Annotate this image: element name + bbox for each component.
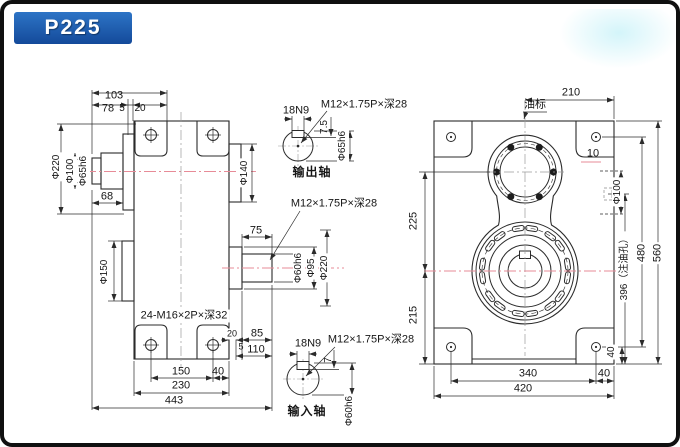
- dim-phi95: Φ95: [306, 256, 318, 279]
- dim-phi60h6-input: Φ60h6: [344, 394, 356, 428]
- dim-40-feet: 40: [212, 367, 224, 378]
- dim-phi100-front: Φ100: [612, 178, 624, 207]
- caption-input-shaft: 输入轴: [287, 405, 326, 417]
- dim-210: 210: [560, 87, 582, 100]
- dim-225: 225: [408, 210, 421, 232]
- dim-5-top: 5: [119, 104, 125, 114]
- dim-phi100-left: Φ100: [65, 157, 77, 186]
- dim-phi65h6-output: Φ65h6: [337, 129, 349, 163]
- oil-gauge-label: 油标: [524, 100, 546, 111]
- dim-40-bottom: 40: [598, 369, 610, 380]
- dim-480: 480: [636, 242, 649, 264]
- front-view-centerlines: [424, 100, 620, 356]
- dim-phi65h6-left: Φ65h6: [78, 154, 90, 188]
- dim-103: 103: [105, 91, 123, 102]
- dim-20-top: 20: [134, 104, 145, 114]
- dim-110: 110: [247, 345, 265, 356]
- thread-note-output: M12×1.75P×深28: [321, 100, 407, 111]
- thread-note-mid: M12×1.75P×深28: [289, 198, 379, 211]
- dim-phi140: Φ140: [239, 159, 251, 188]
- model-number: P225: [44, 16, 101, 40]
- dim-keyway-input: 18N9: [295, 339, 321, 350]
- dim-phi220-mid: Φ220: [319, 254, 331, 283]
- drawing-linework: [4, 4, 680, 447]
- dim-340: 340: [519, 369, 537, 380]
- dim-150: 150: [172, 367, 190, 378]
- dim-396-oil-hole: 396（注油孔）: [619, 232, 631, 303]
- thread-note-24-m16: 24-M16×2P×深32: [139, 310, 230, 323]
- model-badge: P225: [14, 12, 132, 44]
- caption-output-shaft: 输出轴: [292, 166, 331, 178]
- dim-40-right: 40: [606, 344, 618, 359]
- thread-note-input: M12×1.75P×深28: [328, 335, 414, 346]
- dim-78: 78: [102, 104, 114, 115]
- dim-phi220-left: Φ220: [51, 153, 63, 182]
- dim-560: 560: [652, 242, 665, 264]
- dim-phi150: Φ150: [99, 258, 111, 287]
- dim-5-side: 5: [238, 343, 243, 352]
- side-view-dimensions: [57, 90, 331, 411]
- dim-phi60h6-mid: Φ60h6: [293, 251, 305, 285]
- dim-420: 420: [514, 384, 532, 395]
- dim-key-depth-input: 7: [324, 357, 334, 363]
- dim-key-depth-output: 7.5: [320, 120, 330, 134]
- dim-keyway-output: 18N9: [283, 106, 309, 117]
- dim-10: 10: [587, 149, 599, 160]
- side-view-body: [92, 121, 272, 359]
- dim-75: 75: [250, 226, 262, 237]
- input-shaft-detail: [283, 347, 356, 399]
- dim-85: 85: [251, 329, 263, 340]
- dim-215: 215: [408, 304, 421, 326]
- dim-443: 443: [165, 396, 183, 407]
- front-view-holes: [447, 133, 601, 352]
- dim-230: 230: [172, 381, 190, 392]
- dim-68: 68: [101, 192, 113, 203]
- drawing-sheet: P225 103 78 5 20 Φ220 Φ100 Φ65h6 68 Φ150…: [0, 0, 680, 447]
- dim-20-side: 20: [225, 329, 239, 340]
